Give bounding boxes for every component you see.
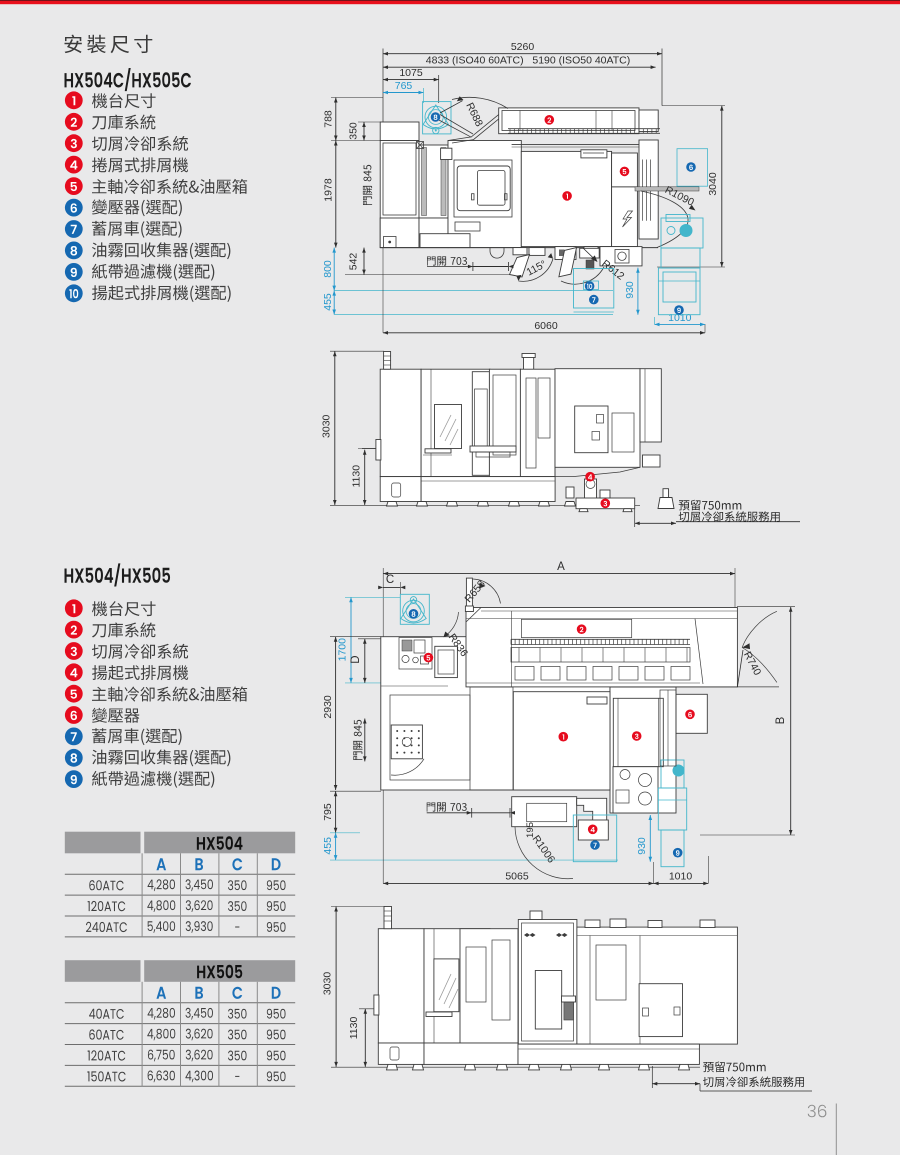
- svg-text:542: 542: [348, 253, 360, 271]
- svg-text:115°: 115°: [525, 258, 549, 278]
- svg-text:R1006: R1006: [530, 833, 558, 865]
- svg-text:1010: 1010: [669, 871, 693, 883]
- svg-text:B: B: [775, 716, 787, 724]
- svg-text:930: 930: [636, 837, 648, 855]
- svg-text:800: 800: [322, 260, 334, 278]
- svg-text:3040: 3040: [707, 172, 719, 196]
- svg-text:1700: 1700: [336, 638, 348, 662]
- svg-text:5260: 5260: [511, 41, 535, 53]
- svg-text:455: 455: [322, 837, 334, 855]
- svg-text:195: 195: [525, 822, 536, 838]
- svg-text:765: 765: [395, 80, 413, 92]
- svg-text:1075: 1075: [399, 67, 423, 79]
- svg-text:1130: 1130: [348, 1017, 360, 1040]
- svg-text:1130: 1130: [350, 465, 362, 488]
- svg-text:C: C: [386, 574, 394, 586]
- svg-text:R740: R740: [741, 650, 763, 678]
- svg-text:R688: R688: [463, 101, 485, 129]
- svg-text:350: 350: [348, 122, 360, 140]
- svg-text:795: 795: [322, 803, 334, 821]
- svg-text:D: D: [350, 655, 362, 663]
- svg-text:455: 455: [322, 293, 334, 311]
- svg-text:1978: 1978: [323, 178, 335, 202]
- svg-text:4833 (ISO40 60ATC) 5190 (ISO: 4833 (ISO40 60ATC) 5190 (ISO50 40ATC): [426, 55, 630, 67]
- svg-text:3030: 3030: [321, 414, 333, 438]
- svg-text:5065: 5065: [505, 871, 529, 883]
- svg-text:930: 930: [624, 281, 636, 299]
- svg-text:3030: 3030: [322, 972, 334, 996]
- svg-text:6060: 6060: [534, 320, 558, 332]
- svg-text:2930: 2930: [322, 695, 334, 719]
- svg-text:A: A: [557, 561, 565, 573]
- svg-text:788: 788: [323, 110, 335, 128]
